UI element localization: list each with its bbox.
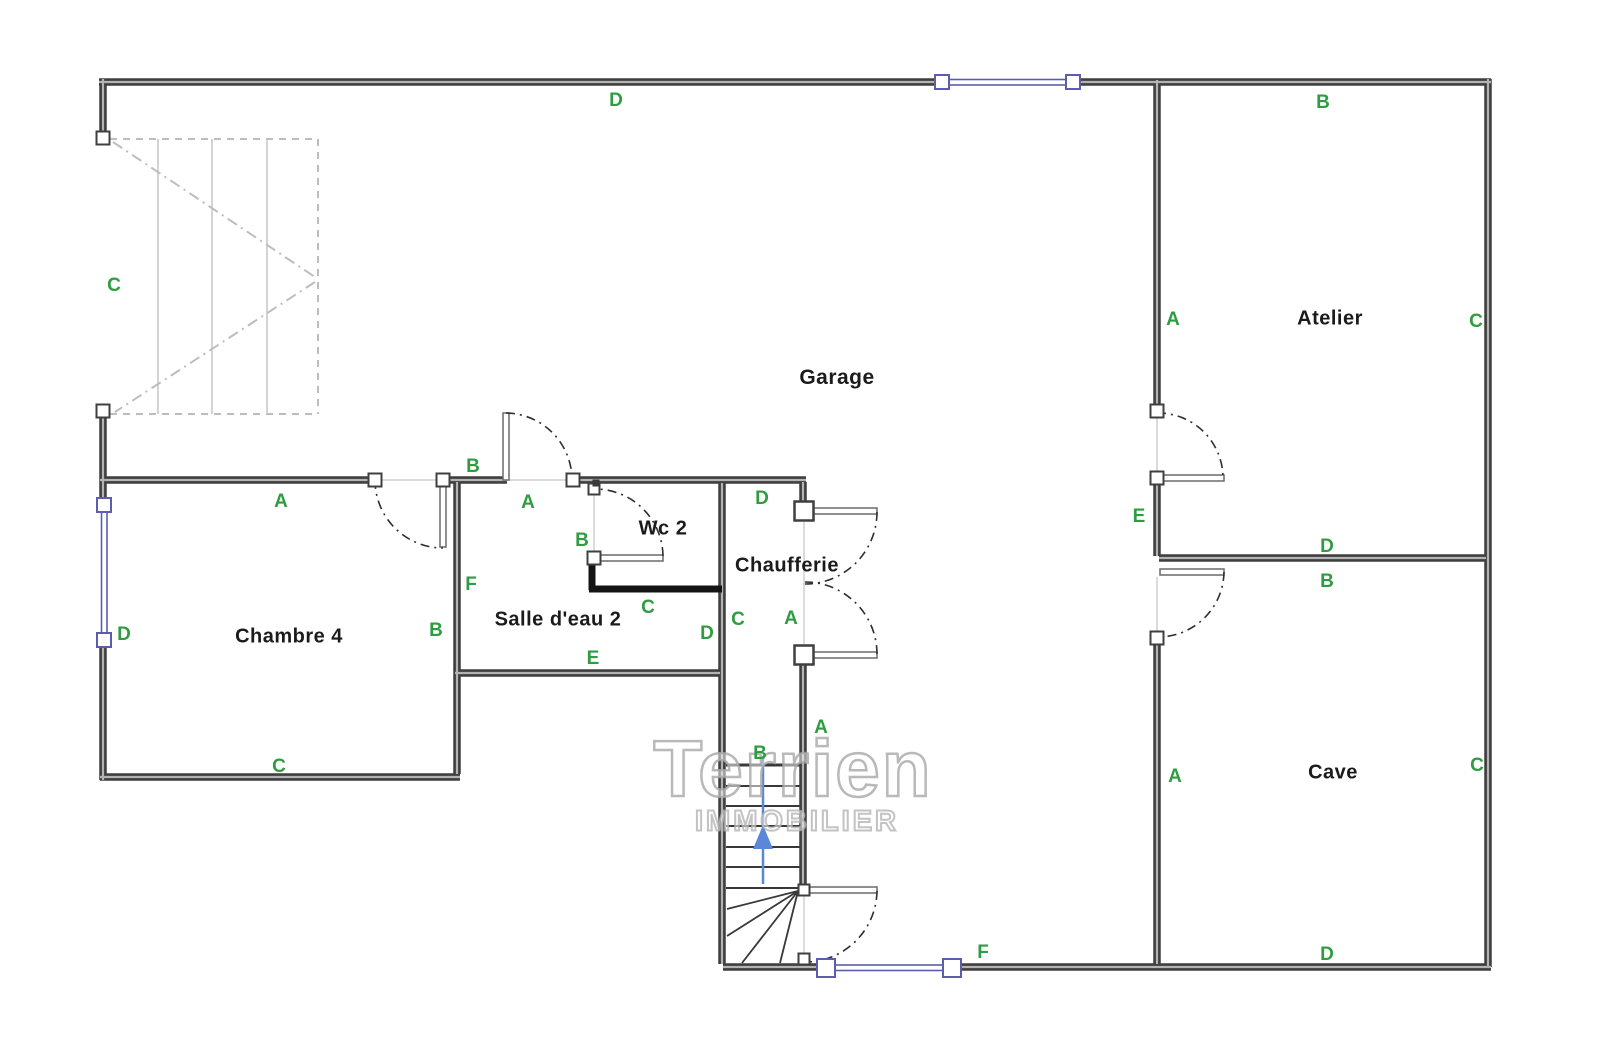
dimension-marker-B-18: B xyxy=(429,620,443,642)
wall-node xyxy=(1151,472,1164,485)
watermark-subtitle: IMMOBILIER xyxy=(695,806,899,839)
dimension-marker-E-10: E xyxy=(1133,506,1146,528)
door-leaf xyxy=(813,508,877,514)
room-label-salledeau2: Salle d'eau 2 xyxy=(495,609,622,632)
dimension-marker-D-19: D xyxy=(117,624,131,646)
room-label-cave: Cave xyxy=(1308,762,1358,785)
dimension-marker-C-14: C xyxy=(641,597,655,619)
dimension-marker-F-27: F xyxy=(977,942,989,964)
window xyxy=(949,80,1066,86)
dimension-marker-D-11: D xyxy=(1320,536,1334,558)
wall-node xyxy=(97,405,110,418)
pillar-node xyxy=(795,646,814,665)
dimension-marker-B-12: B xyxy=(1320,571,1334,593)
dimension-marker-A-22: A xyxy=(1168,766,1182,788)
stair-walk-line xyxy=(113,142,315,277)
door-leaf xyxy=(503,413,509,480)
wall-node xyxy=(1151,405,1164,418)
door-leaf xyxy=(440,481,446,547)
door-swing-arc xyxy=(805,891,877,962)
door-swing-arc xyxy=(805,582,877,654)
dimension-marker-E-20: E xyxy=(587,648,600,670)
dimension-marker-A-16: A xyxy=(784,608,798,630)
door-leaf xyxy=(813,652,877,658)
pillar-node xyxy=(795,502,814,521)
dimension-marker-C-4: C xyxy=(1469,311,1483,333)
dimension-marker-B-1: B xyxy=(1316,92,1330,114)
door-leaf xyxy=(1160,569,1224,575)
door-swing-arc xyxy=(1158,572,1224,637)
stair-walk-line xyxy=(115,282,315,412)
door-leaf xyxy=(805,887,877,893)
wall-node xyxy=(369,474,382,487)
dimension-marker-A-25: A xyxy=(814,717,828,739)
window-node xyxy=(817,959,835,977)
dimension-marker-C-21: C xyxy=(272,756,286,778)
dimension-marker-A-6: A xyxy=(274,491,288,513)
dimension-marker-A-3: A xyxy=(1166,309,1180,331)
door-swing-arc xyxy=(506,413,572,480)
dimension-marker-D-26: D xyxy=(1320,944,1334,966)
wall-node xyxy=(97,132,110,145)
wall-node xyxy=(437,474,450,487)
wall-node xyxy=(1151,632,1164,645)
wall-node xyxy=(799,954,810,965)
door-swing-arc xyxy=(375,480,443,548)
watermark-brand: Terrien xyxy=(653,723,932,815)
dimension-marker-D-8: D xyxy=(755,488,769,510)
wall-node xyxy=(799,885,810,896)
wall-node xyxy=(567,474,580,487)
dimension-marker-B-24: B xyxy=(753,743,767,765)
dimension-marker-B-9: B xyxy=(575,530,589,552)
stair-winder-line xyxy=(727,891,798,909)
floor-plan-drawing xyxy=(0,0,1600,1054)
dimension-marker-C-23: C xyxy=(1470,755,1484,777)
window-node xyxy=(943,959,961,977)
dimension-marker-C-15: C xyxy=(731,609,745,631)
dimension-marker-B-5: B xyxy=(466,456,480,478)
window-node xyxy=(935,75,949,89)
floor-plan: Terrien IMMOBILIER GarageAtelierCaveCham… xyxy=(0,0,1600,1054)
dimension-marker-D-17: D xyxy=(700,623,714,645)
wall-node xyxy=(588,552,601,565)
room-label-atelier: Atelier xyxy=(1297,308,1363,331)
window xyxy=(835,965,945,971)
stair-winder-line xyxy=(727,891,798,936)
dimension-marker-C-2: C xyxy=(107,275,121,297)
room-label-wc2: Wc 2 xyxy=(639,518,688,541)
window-node xyxy=(97,498,111,512)
window-node xyxy=(1066,75,1080,89)
dimension-marker-D-0: D xyxy=(609,90,623,112)
window xyxy=(102,512,108,633)
dimension-marker-A-7: A xyxy=(521,492,535,514)
dimension-marker-F-13: F xyxy=(465,574,477,596)
door-leaf xyxy=(595,555,663,561)
door-leaf xyxy=(1160,475,1224,481)
room-label-garage: Garage xyxy=(799,366,874,390)
room-label-chaufferie: Chaufferie xyxy=(735,555,839,578)
wall-node-small xyxy=(593,480,600,487)
door-swing-arc xyxy=(1157,413,1223,478)
room-label-chambre4: Chambre 4 xyxy=(235,626,343,649)
window-node xyxy=(97,633,111,647)
